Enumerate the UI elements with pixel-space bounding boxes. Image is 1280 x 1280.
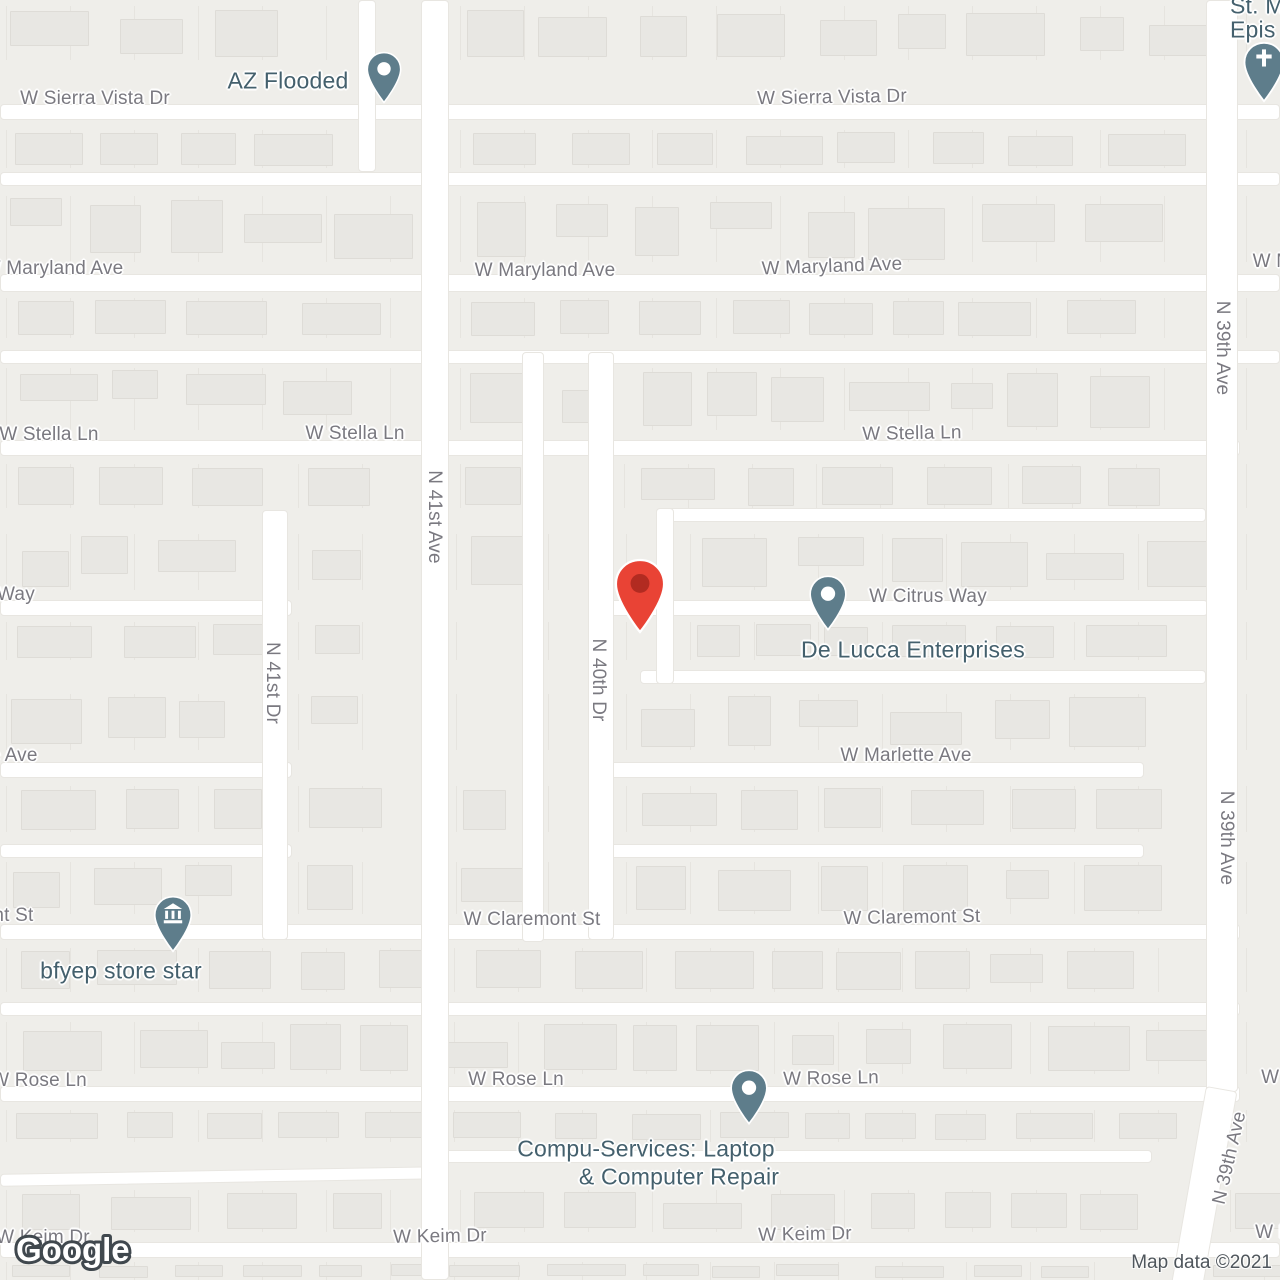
building-footprint <box>453 1112 520 1138</box>
city-block <box>456 862 512 914</box>
street-label: N 41st Ave <box>423 470 445 564</box>
street-label: W Citrus Way <box>869 586 987 608</box>
road <box>0 350 1280 364</box>
city-block <box>624 464 1190 508</box>
building-footprint <box>244 214 322 244</box>
street-label: W Keim Dr <box>758 1223 852 1247</box>
city-block <box>6 1190 435 1232</box>
building-footprint <box>635 207 679 256</box>
building-footprint <box>179 701 224 738</box>
building-footprint <box>1008 136 1074 166</box>
street-label: W Claremont St <box>843 906 980 930</box>
city-block <box>298 534 412 590</box>
building-footprint <box>10 198 62 226</box>
building-footprint <box>1149 25 1208 57</box>
building-footprint <box>18 467 74 505</box>
city-block <box>298 786 412 832</box>
building-footprint <box>961 542 1028 587</box>
building-footprint <box>465 467 521 505</box>
building-footprint <box>283 381 352 414</box>
building-footprint <box>309 788 383 828</box>
building-footprint <box>748 468 794 506</box>
street-label: N 39th Ave <box>1215 791 1237 886</box>
building-footprint <box>11 699 82 744</box>
city-block <box>460 6 1190 60</box>
street-label: W Maryland Ave <box>0 258 123 280</box>
road <box>522 352 544 942</box>
building-footprint <box>799 700 858 727</box>
building-footprint <box>776 1264 839 1276</box>
building-footprint <box>20 374 98 401</box>
building-footprint <box>95 300 166 334</box>
building-footprint <box>575 951 643 989</box>
street-label: W Keim Dr <box>1255 1222 1280 1244</box>
building-footprint <box>185 865 232 896</box>
building-footprint <box>1069 697 1146 747</box>
building-footprint <box>10 11 89 46</box>
city-block <box>298 694 412 750</box>
building-footprint <box>1067 300 1136 334</box>
city-block <box>6 1262 1140 1280</box>
compu-services-pin[interactable] <box>729 1068 769 1126</box>
building-footprint <box>696 1025 759 1071</box>
building-footprint <box>15 133 84 165</box>
building-footprint <box>124 626 195 658</box>
building-footprint <box>809 303 873 335</box>
building-footprint <box>1048 1026 1130 1071</box>
building-footprint <box>982 204 1055 243</box>
building-footprint <box>23 1031 103 1071</box>
city-block <box>1246 622 1280 660</box>
building-footprint <box>544 1024 617 1070</box>
city-block <box>1246 534 1280 590</box>
building-footprint <box>463 790 506 830</box>
street-label: W Marlette Ave <box>0 745 38 767</box>
street-label: W Rose Ln <box>468 1069 564 1091</box>
city-block <box>1246 694 1280 750</box>
city-block <box>6 6 345 60</box>
road <box>0 440 1240 456</box>
building-footprint <box>675 951 755 989</box>
building-footprint <box>837 132 895 163</box>
building-footprint <box>866 1029 912 1064</box>
building-footprint <box>1041 1266 1089 1278</box>
poi-label[interactable]: bfyep store star <box>40 958 202 985</box>
poi-label[interactable]: Epis <box>1230 17 1276 44</box>
city-block <box>548 622 584 660</box>
building-footprint <box>572 133 630 165</box>
city-block <box>456 622 512 660</box>
building-footprint <box>278 1112 339 1138</box>
building-footprint <box>1012 789 1076 829</box>
building-footprint <box>22 551 69 586</box>
city-block <box>460 368 1190 430</box>
building-footprint <box>175 1265 223 1277</box>
street-label: W Claremont St <box>464 909 601 931</box>
building-footprint <box>186 374 266 406</box>
city-block <box>298 862 412 914</box>
building-footprint <box>477 202 527 257</box>
building-footprint <box>849 382 931 410</box>
city-block <box>6 368 412 430</box>
building-footprint <box>90 205 141 253</box>
road <box>588 844 1144 858</box>
building-footprint <box>871 1193 915 1229</box>
building-footprint <box>473 133 536 165</box>
building-footprint <box>633 1025 677 1071</box>
road <box>0 1086 1240 1102</box>
building-footprint <box>697 625 740 657</box>
street-label: W Rose Ln <box>0 1070 87 1092</box>
poi-label[interactable]: AZ Flooded <box>228 68 349 95</box>
google-logo[interactable]: Google <box>10 1228 140 1272</box>
building-footprint <box>710 202 772 229</box>
building-footprint <box>467 10 524 57</box>
city-block <box>6 534 254 590</box>
building-footprint <box>100 133 158 165</box>
building-footprint <box>836 952 901 990</box>
building-footprint <box>712 1266 760 1278</box>
road <box>0 274 1280 292</box>
building-footprint <box>772 951 824 989</box>
building-footprint <box>642 793 717 825</box>
street-label: W Rose Ln <box>783 1067 879 1091</box>
city-block <box>298 464 412 508</box>
building-footprint <box>898 14 946 49</box>
building-footprint <box>17 626 92 658</box>
city-block <box>460 298 1190 338</box>
building-footprint <box>824 788 881 828</box>
building-footprint <box>16 1113 97 1139</box>
building-footprint <box>746 136 823 165</box>
city-block <box>460 196 1190 262</box>
poi-label[interactable]: & Computer Repair <box>579 1164 779 1191</box>
building-footprint <box>120 19 183 55</box>
map-attribution: Map data ©2021 <box>1131 1252 1272 1274</box>
street-label: W Sierra Vista Dr <box>20 88 170 110</box>
building-footprint <box>995 700 1050 740</box>
map-canvas[interactable]: W Sierra Vista DrW Sierra Vista DrW Mary… <box>0 0 1280 1280</box>
building-footprint <box>111 1197 190 1230</box>
building-footprint <box>302 303 381 335</box>
city-block <box>626 694 1190 750</box>
building-footprint <box>1086 625 1166 657</box>
building-footprint <box>935 1114 987 1140</box>
building-footprint <box>1080 1194 1138 1230</box>
building-footprint <box>108 697 165 738</box>
city-block <box>1246 948 1280 992</box>
building-footprint <box>99 467 164 505</box>
city-block <box>298 622 412 660</box>
building-footprint <box>301 952 345 990</box>
city-block <box>456 694 512 750</box>
building-footprint <box>636 866 686 910</box>
building-footprint <box>657 133 713 165</box>
building-footprint <box>974 1265 1022 1277</box>
building-footprint <box>186 301 267 335</box>
building-footprint <box>476 950 541 988</box>
city-block <box>6 464 254 508</box>
building-footprint <box>1108 134 1186 166</box>
building-footprint <box>140 1030 208 1068</box>
road <box>262 510 288 940</box>
road <box>0 600 292 616</box>
building-footprint <box>1022 466 1081 504</box>
building-footprint <box>449 1265 520 1277</box>
building-footprint <box>171 200 223 252</box>
svg-text:Google: Google <box>16 1231 130 1268</box>
building-footprint <box>1090 376 1149 428</box>
building-footprint <box>112 370 158 399</box>
street-label: W Maryland Ave <box>1253 251 1280 273</box>
building-footprint <box>728 696 770 746</box>
building-footprint <box>927 467 992 505</box>
street-label: W Maryland Ave <box>475 260 616 282</box>
building-footprint <box>890 712 962 745</box>
building-footprint <box>333 1193 382 1229</box>
building-footprint <box>243 1265 302 1277</box>
road <box>421 0 449 1280</box>
street-label: W Citrus Way <box>0 584 35 606</box>
building-footprint <box>893 301 944 335</box>
building-footprint <box>805 1113 851 1139</box>
building-footprint <box>641 468 714 500</box>
building-footprint <box>943 1024 1012 1069</box>
road <box>0 104 1280 120</box>
road <box>656 508 1206 522</box>
building-footprint <box>207 1113 262 1139</box>
city-block <box>1246 786 1280 832</box>
building-footprint <box>214 789 263 829</box>
building-footprint <box>308 468 369 506</box>
building-footprint <box>1096 789 1162 829</box>
street-label: N 39th Ave <box>1211 301 1233 396</box>
building-footprint <box>474 1192 544 1228</box>
building-footprint <box>1006 870 1049 899</box>
city-block <box>690 534 1190 590</box>
city-block <box>1246 464 1280 508</box>
city-block <box>1246 862 1280 914</box>
building-footprint <box>663 1203 742 1229</box>
destination-pin[interactable] <box>613 554 667 638</box>
bfyep-store-pin[interactable] <box>152 895 194 953</box>
building-footprint <box>315 625 359 653</box>
road <box>1206 0 1238 1092</box>
city-block <box>548 786 584 832</box>
city-block <box>6 786 254 832</box>
road <box>640 670 1206 684</box>
street-label: N 41st Dr <box>261 642 283 724</box>
building-footprint <box>868 208 945 260</box>
building-footprint <box>1119 1113 1177 1139</box>
city-block <box>460 130 1190 168</box>
building-footprint <box>215 10 279 57</box>
building-footprint <box>209 951 272 989</box>
building-footprint <box>1007 373 1058 427</box>
road <box>0 1002 1240 1016</box>
building-footprint <box>126 789 179 829</box>
building-footprint <box>254 134 332 166</box>
building-footprint <box>290 1024 342 1070</box>
building-footprint <box>966 13 1045 56</box>
building-footprint <box>771 377 824 422</box>
building-footprint <box>933 132 984 164</box>
building-footprint <box>1046 553 1124 581</box>
building-footprint <box>158 540 236 571</box>
road <box>0 844 292 858</box>
building-footprint <box>319 1265 361 1277</box>
building-footprint <box>1011 1193 1068 1228</box>
city-block <box>6 298 412 338</box>
building-footprint <box>547 1264 627 1276</box>
city-block <box>6 1022 1190 1074</box>
building-footprint <box>18 301 74 335</box>
building-footprint <box>702 538 768 587</box>
building-footprint <box>311 696 358 724</box>
street-label: W Stella Ln <box>305 423 404 445</box>
building-footprint <box>192 468 263 506</box>
street-label: W Keim Dr <box>393 1225 487 1249</box>
church-pin[interactable] <box>1241 41 1280 103</box>
road <box>0 1242 1280 1258</box>
building-footprint <box>820 20 877 56</box>
building-footprint <box>1084 865 1162 911</box>
de-lucca-pin[interactable] <box>808 574 848 632</box>
building-footprint <box>22 1194 80 1230</box>
building-footprint <box>951 383 993 409</box>
city-block <box>6 196 412 262</box>
building-footprint <box>643 1264 700 1276</box>
building-footprint <box>915 951 969 989</box>
road <box>0 172 1280 186</box>
building-footprint <box>1016 1113 1093 1139</box>
road <box>0 1166 442 1187</box>
city-block <box>1246 130 1280 168</box>
building-footprint <box>538 17 607 57</box>
street-label: N 40th Dr <box>587 638 609 721</box>
building-footprint <box>564 1192 636 1228</box>
building-footprint <box>1067 951 1134 989</box>
building-footprint <box>990 954 1044 982</box>
street-label: W Stella Ln <box>0 424 99 446</box>
city-block <box>626 786 1190 832</box>
building-footprint <box>227 1193 298 1229</box>
building-footprint <box>221 1042 274 1069</box>
building-footprint <box>643 372 691 426</box>
poi-label[interactable]: De Lucca Enterprises <box>801 637 1025 664</box>
poi-label[interactable]: Compu-Services: Laptop <box>517 1136 775 1163</box>
street-label: W Stella Ln <box>862 422 962 446</box>
street-label: W Claremont St <box>0 905 33 927</box>
city-block <box>6 130 345 168</box>
city-block <box>548 862 584 914</box>
building-footprint <box>808 212 855 259</box>
city-block <box>456 786 512 832</box>
building-footprint <box>127 1112 173 1138</box>
building-footprint <box>945 1192 991 1228</box>
city-block <box>548 534 584 590</box>
building-footprint <box>718 870 791 911</box>
city-block <box>548 694 584 750</box>
building-footprint <box>865 1113 916 1139</box>
building-footprint <box>741 790 798 830</box>
az-flooded-pin[interactable] <box>364 51 404 104</box>
building-footprint <box>81 536 128 574</box>
building-footprint <box>717 14 785 57</box>
building-footprint <box>640 16 687 57</box>
building-footprint <box>560 300 609 334</box>
building-footprint <box>875 1266 944 1278</box>
street-label: W Sierra Vista Dr <box>757 86 907 111</box>
city-block <box>6 622 254 660</box>
building-footprint <box>556 204 609 237</box>
building-footprint <box>334 214 413 259</box>
building-footprint <box>641 709 696 747</box>
building-footprint <box>312 550 361 580</box>
building-footprint <box>792 1035 834 1064</box>
city-block <box>1246 368 1280 430</box>
city-block <box>6 694 254 750</box>
building-footprint <box>822 467 892 505</box>
building-footprint <box>307 865 353 910</box>
building-footprint <box>21 790 96 830</box>
building-footprint <box>13 872 60 908</box>
building-footprint <box>958 302 1031 336</box>
building-footprint <box>471 302 535 336</box>
building-footprint <box>707 372 757 416</box>
building-footprint <box>821 866 868 911</box>
road <box>0 762 292 778</box>
building-footprint <box>1085 204 1162 242</box>
building-footprint <box>892 538 943 581</box>
building-footprint <box>1080 17 1124 51</box>
city-block <box>456 534 512 590</box>
building-footprint <box>360 1025 408 1071</box>
street-label: W Rose Ln <box>1261 1067 1280 1089</box>
building-footprint <box>733 300 789 334</box>
building-footprint <box>903 865 968 911</box>
building-footprint <box>911 790 984 825</box>
building-footprint <box>181 133 236 165</box>
building-footprint <box>798 537 864 566</box>
building-footprint <box>1108 468 1159 506</box>
building-footprint <box>639 301 702 335</box>
city-block <box>1246 298 1280 338</box>
city-block <box>6 862 254 914</box>
street-label: W Marlette Ave <box>840 745 971 767</box>
